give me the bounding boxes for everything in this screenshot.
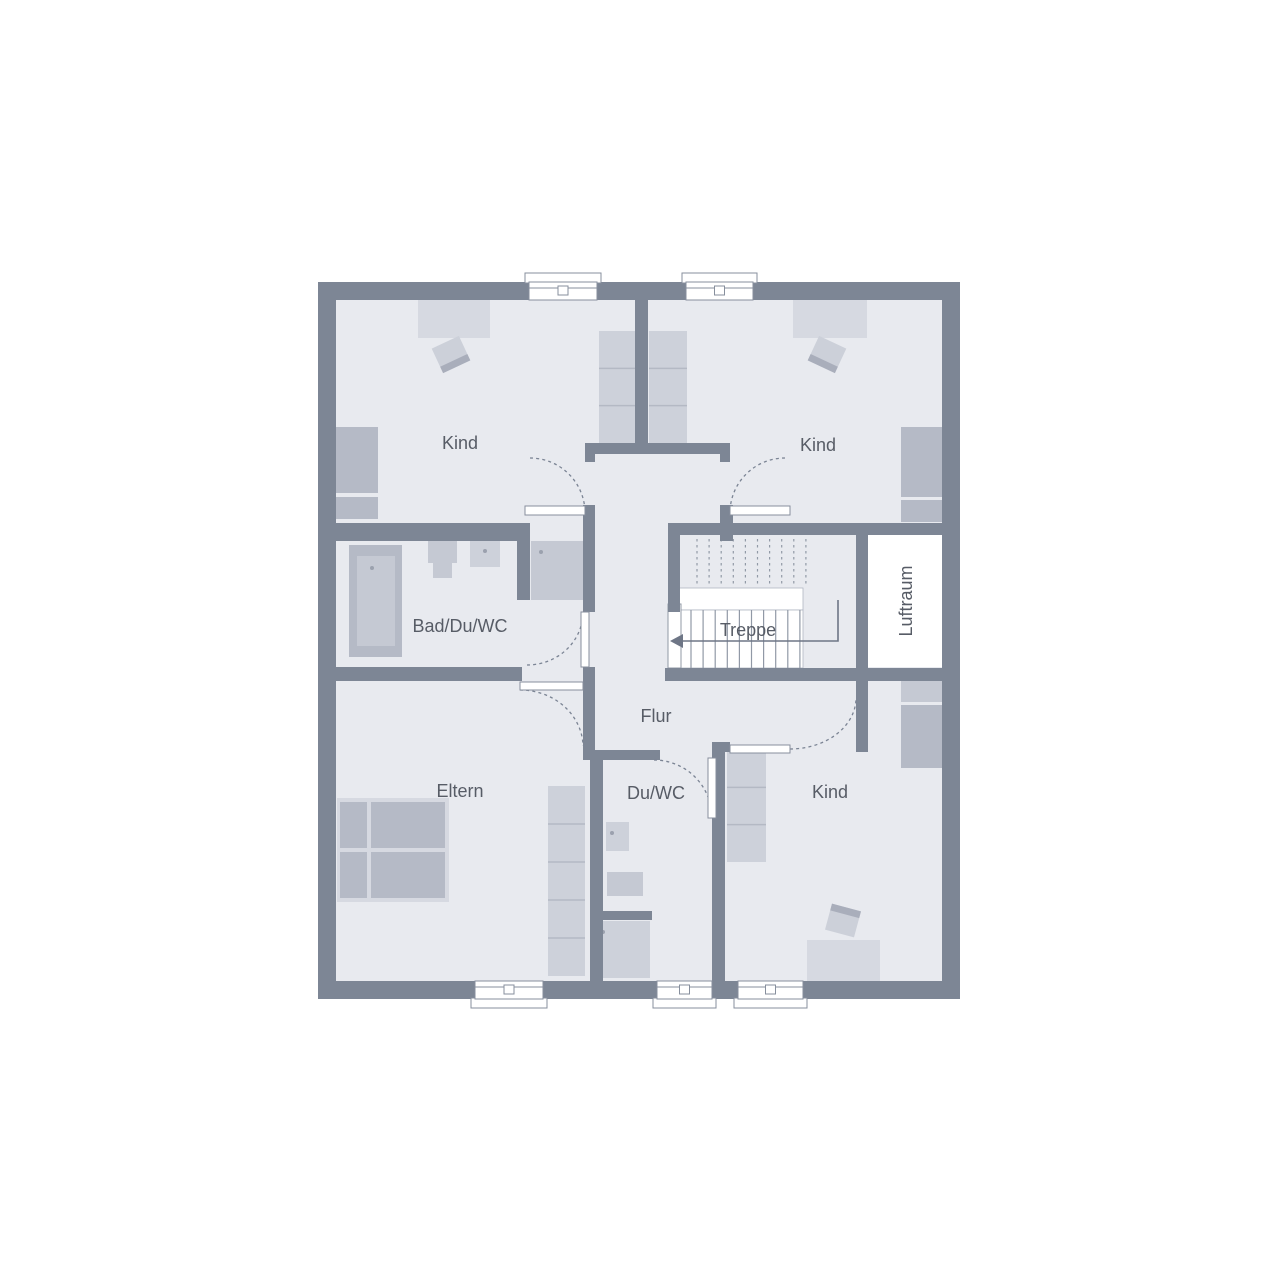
wardrobe bbox=[599, 331, 637, 443]
wardrobe bbox=[548, 786, 585, 976]
wall-hall-cap-flange-right bbox=[720, 443, 730, 462]
double-bed-part bbox=[371, 802, 445, 848]
wall-duwc-shower-partition bbox=[592, 911, 652, 920]
room-label-eltern: Eltern bbox=[436, 781, 483, 801]
room-label-kind-top-right: Kind bbox=[800, 435, 836, 455]
floor-plan-svg: KindKindBad/Du/WCTreppeLuftraumFlurElter… bbox=[0, 0, 1280, 1280]
room-label-du-wc: Du/WC bbox=[627, 783, 685, 803]
window-eltern-handle bbox=[504, 985, 514, 994]
wall-kind-bottom-corner bbox=[712, 742, 730, 752]
wall-stair-top bbox=[668, 523, 948, 535]
wall-divider-top bbox=[635, 300, 648, 445]
wall-bad-top bbox=[336, 523, 528, 541]
window-kind-top-left-handle bbox=[558, 286, 568, 295]
window-duwc-handle bbox=[680, 985, 690, 994]
room-label-kind-bottom: Kind bbox=[812, 782, 848, 802]
bathtub-drain bbox=[370, 566, 374, 570]
desk bbox=[807, 940, 880, 981]
wall-stair-bottom bbox=[665, 668, 948, 681]
room-label-flur: Flur bbox=[641, 706, 672, 726]
door-kind-bottom-leaf bbox=[730, 745, 790, 753]
room-label-kind-top-left: Kind bbox=[442, 433, 478, 453]
door-eltern-leaf bbox=[520, 682, 583, 690]
toilet bbox=[470, 541, 500, 567]
window-kind-bottom-handle bbox=[766, 985, 776, 994]
wardrobe bbox=[649, 331, 687, 443]
shower-drain bbox=[539, 550, 543, 554]
wall-hall-cap bbox=[585, 443, 730, 454]
bed bbox=[901, 427, 942, 497]
shelf bbox=[727, 750, 766, 862]
toilet-drain bbox=[483, 549, 487, 553]
desk bbox=[418, 300, 490, 338]
wall-kind-bottom-stub bbox=[856, 681, 868, 752]
room-label-treppe: Treppe bbox=[720, 620, 776, 640]
bed bbox=[336, 427, 378, 493]
wall-flur-left bbox=[583, 667, 595, 760]
stair-landing bbox=[679, 588, 803, 610]
sink-basin bbox=[433, 563, 452, 578]
wall-hall-left-stub bbox=[583, 505, 595, 612]
desk bbox=[793, 300, 867, 338]
wall-duwc-left bbox=[590, 758, 603, 981]
wall-bad-bottom bbox=[336, 667, 522, 681]
toilet-drain bbox=[610, 831, 614, 835]
room-label-bad: Bad/Du/WC bbox=[412, 616, 507, 636]
wall-bad-partition bbox=[517, 523, 530, 600]
toilet bbox=[606, 822, 629, 851]
sink bbox=[428, 541, 457, 563]
bathtub-inner bbox=[357, 556, 395, 646]
door-kind-top-right-leaf bbox=[730, 506, 790, 515]
floor-plan-page: KindKindBad/Du/WCTreppeLuftraumFlurElter… bbox=[0, 0, 1280, 1280]
double-bed-part bbox=[340, 852, 367, 898]
stair-entry-step bbox=[668, 604, 681, 668]
double-bed-part bbox=[371, 852, 445, 898]
sink bbox=[607, 872, 643, 896]
bed-pillow bbox=[901, 500, 942, 522]
bed bbox=[901, 705, 942, 768]
wall-duwc-top bbox=[595, 750, 660, 760]
double-bed-part bbox=[340, 802, 367, 848]
door-bad-leaf bbox=[581, 612, 589, 667]
wall-hall-cap-flange-left bbox=[585, 443, 595, 462]
room-label-luftraum: Luftraum bbox=[896, 565, 916, 636]
wall-luftraum-left bbox=[856, 532, 868, 668]
door-duwc-leaf bbox=[708, 758, 716, 818]
wall-stair-left bbox=[668, 523, 680, 612]
shower bbox=[531, 541, 583, 600]
window-kind-top-right-handle bbox=[715, 286, 725, 295]
door-kind-top-left-leaf bbox=[525, 506, 585, 515]
bed-pillow bbox=[336, 497, 378, 519]
